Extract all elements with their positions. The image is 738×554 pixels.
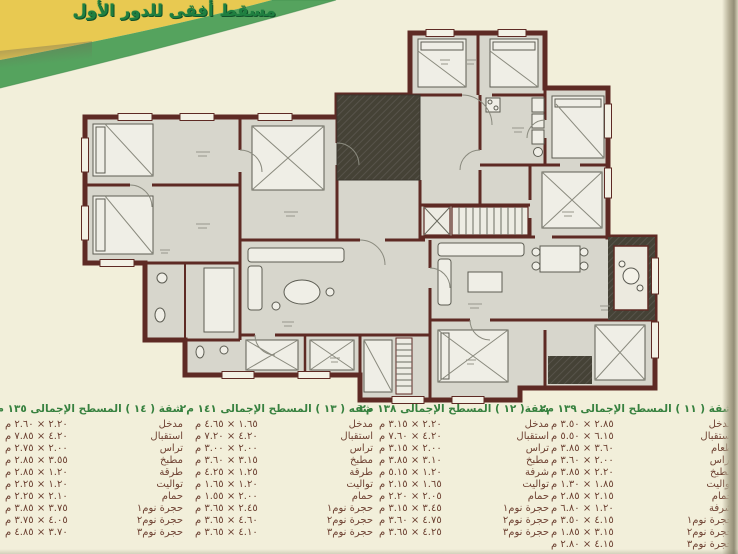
room-list: مدخل٢.٢٠ × ٣.١٥ ماستقبال٤.٢٠ × ٧.٦٠ مترا… [379, 419, 549, 539]
room-row: تراس٢.٠٠ × ٣.٦٠ م [551, 455, 733, 467]
room-name: تواليت [156, 479, 183, 491]
apartment-title: شقه ( ١٣ ) المسطح الإجمالى ١٤١ م٢ [195, 403, 373, 415]
light-well-shaft [337, 95, 420, 180]
room-name: حجرة نوم١ [503, 503, 549, 515]
room-dimensions: ٣.٦٠ × ٣.٨٥ م [551, 443, 647, 455]
apartment-table-11: شقة ( ١١ ) المسطح الإجمالى ١٣٩ م٢ مدخل٢.… [551, 403, 733, 551]
room-name: تراس [526, 443, 549, 455]
room-dimensions: ١.٢٠ × ٦.٨٠ م [551, 503, 647, 515]
room-dimensions: ٢.٠٠ × ٣.٦٠ م [551, 455, 647, 467]
room-dimensions: ٢.٠٠ × ٢.٧٥ م [5, 443, 101, 455]
scanned-brochure-page: مسقط أفقى للدور الأول [0, 0, 738, 554]
room-dimensions: ١.٦٥ × ٢.١٥ م [379, 479, 475, 491]
room-row: مطبخ٣.١٠ × ٣.٨٥ م [379, 455, 549, 467]
room-name: استقبال [340, 431, 373, 443]
apartment-table-12: شقة( ١٢ ) المسطح الإجمالى ١٣٨ م٢ مدخل٢.٢… [379, 403, 549, 539]
room-name: استقبال [150, 431, 183, 443]
room-dimensions: ٣.٧٠ × ٤.٨٥ م [5, 527, 101, 539]
room-row: حمام٢.٠٠ × ١.٥٥ م [195, 491, 373, 503]
room-row: حمام٢.١٥ × ٢.٨٥ م [551, 491, 733, 503]
room-dimensions: ٤.١٠ × ٣.٦٥ م [195, 527, 291, 539]
room-name: تراس [160, 443, 183, 455]
room-row: حجرة نوم٢٣.١٥ × ١.٨٥ م [551, 527, 733, 539]
room-row: شرفة١.٢٠ × ٥.١٥ م [379, 467, 549, 479]
room-row: مطبخ٣.١٥ × ٣.٦٠ م [195, 455, 373, 467]
room-row: تواليت١.٨٥ × ١.٣٠ م [551, 479, 733, 491]
room-dimensions: ٢.١٠ × ٢.٢٥ م [5, 491, 101, 503]
room-row: مدخل١.٦٥ × ٤.٦٥ م [195, 419, 373, 431]
room-dimensions: ٢.١٥ × ٢.٨٥ م [551, 491, 647, 503]
room-dimensions: ٢.٠٠ × ٣.٠٠ م [195, 443, 291, 455]
room-dimensions: ١.٢٠ × ١.٦٥ م [195, 479, 291, 491]
room-row: مدخل٢.٢٠ × ٣.١٥ م [379, 419, 549, 431]
room-dimensions: ٦.١٥ × ٥.٥٠ م [551, 431, 647, 443]
room-row: حمام٢.٠٥ × ٢.٢٠ م [379, 491, 549, 503]
room-row: تراس٢.٠٠ × ٣.١٥ م [379, 443, 549, 455]
room-row: مطبخ٣.٥٥ × ٢.٨٥ م [5, 455, 183, 467]
room-name: حمام [162, 491, 183, 503]
room-row: تواليت١.٢٠ × ٢.٢٥ م [5, 479, 183, 491]
room-dimensions: ٤.٢٠ × ٧.٦٠ م [379, 431, 475, 443]
room-dimensions: ٢.٢٠ × ٣.١٥ م [379, 419, 475, 431]
room-name: حجرة نوم٢ [327, 515, 373, 527]
room-name: تراس [350, 443, 373, 455]
room-dimensions: ١.٢٠ × ٢.٢٥ م [5, 479, 101, 491]
room-dimensions: ٢.٤٥ × ٣.٦٥ م [195, 503, 291, 515]
room-row: حجرة نوم٢٤.٠٥ × ٣.٧٥ م [5, 515, 183, 527]
room-dimensions: ١.٢٥ × ٤.٢٥ م [195, 467, 291, 479]
room-name: حمام [352, 491, 373, 503]
room-dimensions: ٤.٢٥ × ٣.٦٥ م [379, 527, 475, 539]
room-name: حجرة نوم١ [137, 503, 183, 515]
room-dimensions: ٤.٦٠ × ٣.٦٥ م [195, 515, 291, 527]
room-row: تواليت١.٦٥ × ٢.١٥ م [379, 479, 549, 491]
room-dimensions: ٣.١٠ × ٣.٨٥ م [379, 455, 475, 467]
service-steps-hatch [548, 356, 592, 384]
room-dimensions: ٣.٤٥ × ٣.١٥ م [379, 503, 475, 515]
room-row: حجرة نوم١٤.١٥ × ٣.٥٠ م [551, 515, 733, 527]
room-row: استقبال٤.٢٠ × ٧.٦٠ م [379, 431, 549, 443]
floor-plan-drawing [0, 0, 738, 410]
room-name: طرقة [159, 467, 183, 479]
room-name: مطبخ [160, 455, 183, 467]
room-row: استقبال٤.٢٠ × ٧.٢٠ م [195, 431, 373, 443]
room-dimensions: ٢.٨٥ × ٣.٥٠ م [551, 419, 647, 431]
room-row: استقبال٤.٢٠ × ٧.٨٥ م [5, 431, 183, 443]
room-name: مدخل [525, 419, 549, 431]
room-row: طعام٣.٦٠ × ٣.٨٥ م [551, 443, 733, 455]
room-name: حجرة نوم٣ [503, 527, 549, 539]
room-name: تواليت [522, 479, 549, 491]
room-dimensions: ١.٨٥ × ١.٣٠ م [551, 479, 647, 491]
room-dimensions: ٣.٥٥ × ٢.٨٥ م [5, 455, 101, 467]
apartment-title: شقة( ١٢ ) المسطح الإجمالى ١٣٨ م٢ [379, 403, 549, 415]
room-row: طرقة١.٢٠ × ٢.٨٥ م [5, 467, 183, 479]
room-dimensions: ١.٦٥ × ٤.٦٥ م [195, 419, 291, 431]
room-name: استقبال [516, 431, 549, 443]
room-dimensions: ٢.٠٠ × ١.٥٥ م [195, 491, 291, 503]
room-row: حجرة نوم٣٤.١٠ × ٣.٦٥ م [195, 527, 373, 539]
room-row: حجرة نوم٣٣.٧٠ × ٤.٨٥ م [5, 527, 183, 539]
room-dimensions: ٣.٧٥ × ٣.٨٥ م [5, 503, 101, 515]
room-name: حجرة نوم١ [327, 503, 373, 515]
room-row: تراس٢.٠٠ × ٢.٧٥ م [5, 443, 183, 455]
room-dimensions: ٤.٠٥ × ٣.٧٥ م [5, 515, 101, 527]
room-name: مدخل [159, 419, 183, 431]
room-dimensions: ٣.١٥ × ١.٨٥ م [551, 527, 647, 539]
room-row: طرقة١.٢٥ × ٤.٢٥ م [195, 467, 373, 479]
room-dimensions: ٢.٠٥ × ٢.٢٠ م [379, 491, 475, 503]
elevator-shaft [424, 207, 450, 235]
apartment-title: شقة ( ١١ ) المسطح الإجمالى ١٣٩ م٢ [551, 403, 733, 415]
room-row: تواليت١.٢٠ × ١.٦٥ م [195, 479, 373, 491]
scan-bottom-shadow [0, 549, 738, 554]
room-dimensions: ٢.٢٠ × ٢.٦٠ م [5, 419, 101, 431]
room-name: مطبخ [350, 455, 373, 467]
room-name: حجرة نوم٢ [137, 515, 183, 527]
room-row: مدخل٢.٨٥ × ٣.٥٠ م [551, 419, 733, 431]
room-list: مدخل٢.٢٠ × ٢.٦٠ ماستقبال٤.٢٠ × ٧.٨٥ مترا… [5, 419, 183, 539]
room-dimensions: ٢.٠٠ × ٣.١٥ م [379, 443, 475, 455]
room-row: تراس٢.٠٠ × ٣.٠٠ م [195, 443, 373, 455]
room-name: طرقة [349, 467, 373, 479]
room-row: شرفة١.٢٠ × ٦.٨٠ م [551, 503, 733, 515]
scan-edge-shadow [722, 0, 738, 554]
room-name: مطبخ [526, 455, 549, 467]
room-dimensions: ٤.٧٥ × ٣.٦٠ م [379, 515, 475, 527]
room-name: مدخل [349, 419, 373, 431]
room-row: مدخل٢.٢٠ × ٢.٦٠ م [5, 419, 183, 431]
room-name: شرفة [525, 467, 549, 479]
room-row: حجرة نوم١٣.٤٥ × ٣.١٥ م [379, 503, 549, 515]
room-name: حجرة نوم٣ [137, 527, 183, 539]
room-row: حمام٢.١٠ × ٢.٢٥ م [5, 491, 183, 503]
room-name: حجرة نوم٣ [327, 527, 373, 539]
room-name: حجرة نوم٢ [503, 515, 549, 527]
room-dimensions: ٤.١٥ × ٣.٥٠ م [551, 515, 647, 527]
room-row: حجرة نوم٢٤.٦٠ × ٣.٦٥ م [195, 515, 373, 527]
room-row: استقبال٦.١٥ × ٥.٥٠ م [551, 431, 733, 443]
room-dimensions: ٢.٢٠ × ٣.٨٥ م [551, 467, 647, 479]
room-row: حجرة نوم١٣.٧٥ × ٣.٨٥ م [5, 503, 183, 515]
room-dimensions: ٣.١٥ × ٣.٦٠ م [195, 455, 291, 467]
room-dimensions: ١.٢٠ × ٢.٨٥ م [5, 467, 101, 479]
room-dimensions: ٤.٢٠ × ٧.٢٠ م [195, 431, 291, 443]
room-dimensions: ١.٢٠ × ٥.١٥ م [379, 467, 475, 479]
apartment-table-14: شقة ( ١٤ ) المسطح الإجمالى ١٣٥ م٢ مدخل٢.… [5, 403, 183, 539]
apartment-title: شقة ( ١٤ ) المسطح الإجمالى ١٣٥ م٢ [5, 403, 183, 415]
room-row: حجرة نوم٣٤.٢٥ × ٣.٦٥ م [379, 527, 549, 539]
room-row: حجرة نوم٢٤.٧٥ × ٣.٦٠ م [379, 515, 549, 527]
room-list: مدخل٢.٨٥ × ٣.٥٠ ماستقبال٦.١٥ × ٥.٥٠ مطعا… [551, 419, 733, 551]
room-list: مدخل١.٦٥ × ٤.٦٥ ماستقبال٤.٢٠ × ٧.٢٠ مترا… [195, 419, 373, 539]
apartment-table-13: شقه ( ١٣ ) المسطح الإجمالى ١٤١ م٢ مدخل١.… [195, 403, 373, 539]
room-name: تواليت [346, 479, 373, 491]
room-name: حمام [528, 491, 549, 503]
room-dimensions: ٤.٢٠ × ٧.٨٥ م [5, 431, 101, 443]
terrace [608, 237, 655, 320]
room-row: مطبخ٢.٢٠ × ٣.٨٥ م [551, 467, 733, 479]
room-row: حجرة نوم١٢.٤٥ × ٣.٦٥ م [195, 503, 373, 515]
